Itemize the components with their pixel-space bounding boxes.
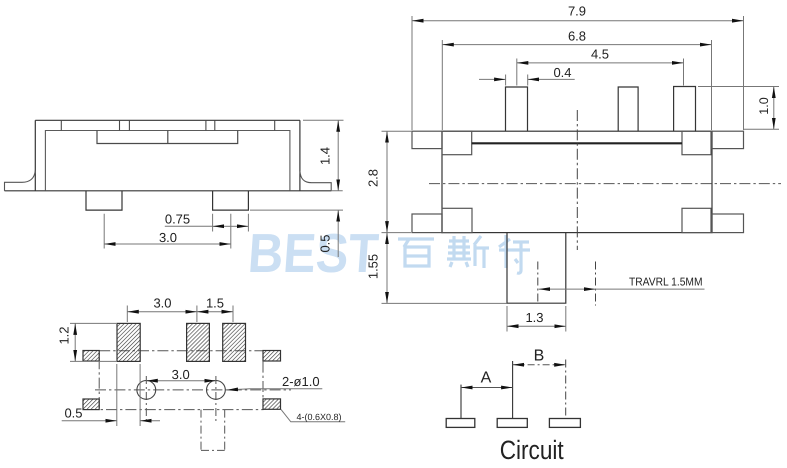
svg-text:1.3: 1.3 [525,310,543,325]
svg-text:0.5: 0.5 [64,405,82,420]
svg-text:1.2: 1.2 [57,326,72,344]
svg-text:3.0: 3.0 [159,230,177,245]
svg-text:1.5: 1.5 [206,295,224,310]
svg-text:3.0: 3.0 [172,367,190,382]
svg-text:1.4: 1.4 [318,147,333,165]
svg-text:4-(0.6X0.8): 4-(0.6X0.8) [297,412,342,422]
svg-text:0.75: 0.75 [165,211,190,226]
svg-text:0.5: 0.5 [318,234,333,252]
svg-text:1.55: 1.55 [366,254,381,279]
svg-text:B: B [534,347,545,364]
svg-text:3.0: 3.0 [153,295,171,310]
svg-text:7.9: 7.9 [568,4,586,19]
svg-text:2-ø1.0: 2-ø1.0 [282,374,320,389]
svg-text:A: A [481,369,492,386]
svg-text:BEST: BEST [246,222,380,284]
svg-text:4.5: 4.5 [591,47,609,62]
svg-text:2.8: 2.8 [366,169,381,187]
svg-text:TRAVRL 1.5MM: TRAVRL 1.5MM [629,277,703,289]
svg-text:Circuit: Circuit [500,435,565,465]
svg-text:0.4: 0.4 [553,65,571,80]
svg-text:6.8: 6.8 [568,28,586,43]
svg-text:1.0: 1.0 [757,97,771,114]
